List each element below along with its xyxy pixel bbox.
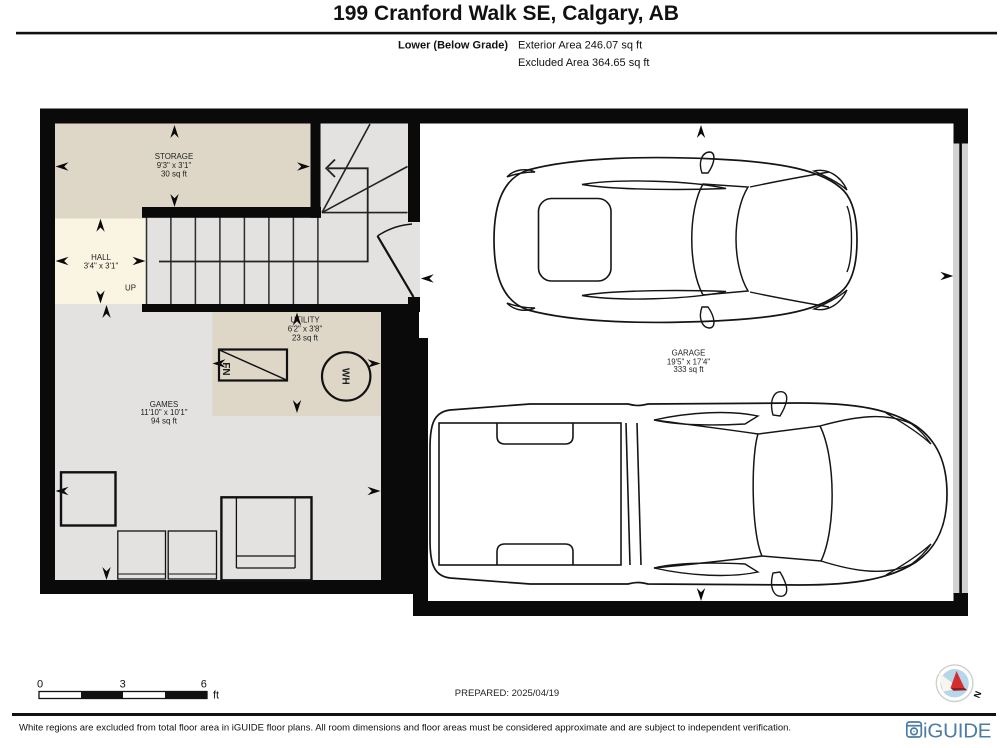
- svg-text:Excluded Area 364.65 sq ft: Excluded Area 364.65 sq ft: [518, 57, 649, 69]
- svg-text:FN: FN: [220, 362, 231, 375]
- svg-text:PREPARED: 2025/04/19: PREPARED: 2025/04/19: [455, 688, 559, 699]
- svg-text:30 sq ft: 30 sq ft: [161, 169, 188, 178]
- svg-text:23 sq ft: 23 sq ft: [292, 333, 319, 342]
- svg-text:STORAGE: STORAGE: [155, 152, 193, 161]
- svg-text:333 sq ft: 333 sq ft: [673, 365, 704, 374]
- svg-text:6: 6: [201, 679, 207, 691]
- svg-text:ft: ft: [213, 690, 219, 702]
- svg-text:3'4" x 3'1": 3'4" x 3'1": [84, 262, 119, 271]
- svg-text:94 sq ft: 94 sq ft: [151, 417, 178, 426]
- svg-text:GARAGE: GARAGE: [672, 349, 706, 358]
- svg-text:199 Cranford Walk SE, Calgary,: 199 Cranford Walk SE, Calgary, AB: [333, 2, 679, 25]
- svg-text:White regions are excluded fro: White regions are excluded from total fl…: [19, 722, 791, 733]
- svg-text:Lower (Below Grade): Lower (Below Grade): [398, 40, 508, 52]
- svg-text:6'2" x 3'8": 6'2" x 3'8": [288, 324, 323, 333]
- svg-text:3: 3: [120, 679, 126, 691]
- svg-text:UP: UP: [125, 283, 136, 292]
- svg-text:WH: WH: [340, 368, 351, 385]
- svg-text:0: 0: [37, 679, 43, 691]
- svg-text:iGUIDE: iGUIDE: [923, 719, 991, 742]
- svg-text:Exterior Area 246.07 sq ft: Exterior Area 246.07 sq ft: [518, 40, 642, 52]
